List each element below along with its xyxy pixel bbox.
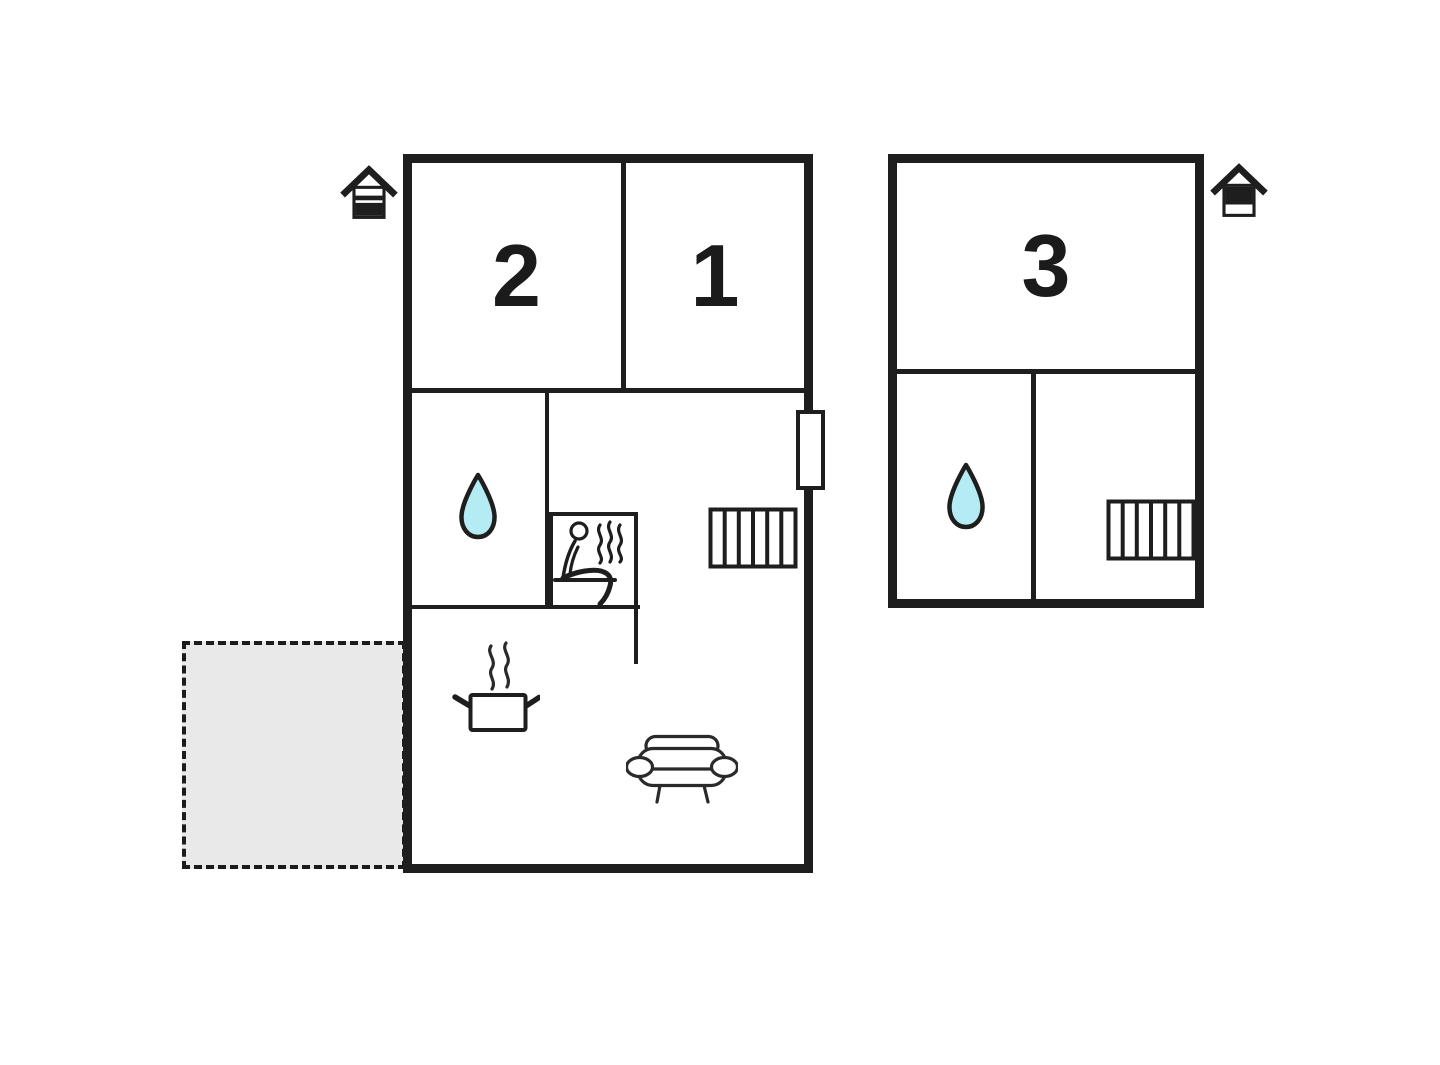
water-drop-icon <box>944 461 988 531</box>
room-1-label: 1 <box>626 163 804 388</box>
wall-annex-divider <box>1031 374 1036 599</box>
room-2-label: 2 <box>412 163 621 388</box>
entrance-house-icon <box>1210 162 1268 218</box>
sofa-icon <box>626 733 738 805</box>
wall-below-bedrooms <box>412 388 804 393</box>
wall-kitchen-partial <box>634 609 638 664</box>
sauna-room <box>549 512 638 609</box>
floor-plan: 2 1 <box>0 0 1440 1065</box>
window-marker <box>796 410 825 490</box>
sauna-person-icon <box>553 516 634 605</box>
entrance-house-icon <box>340 164 398 220</box>
wall-below-room3 <box>897 369 1195 374</box>
radiator-icon <box>1106 499 1196 561</box>
radiator-icon <box>708 507 798 569</box>
water-drop-icon <box>456 471 500 541</box>
room-3-label: 3 <box>897 163 1195 369</box>
terrace-area <box>182 641 406 869</box>
cooking-pot-icon <box>450 640 540 735</box>
